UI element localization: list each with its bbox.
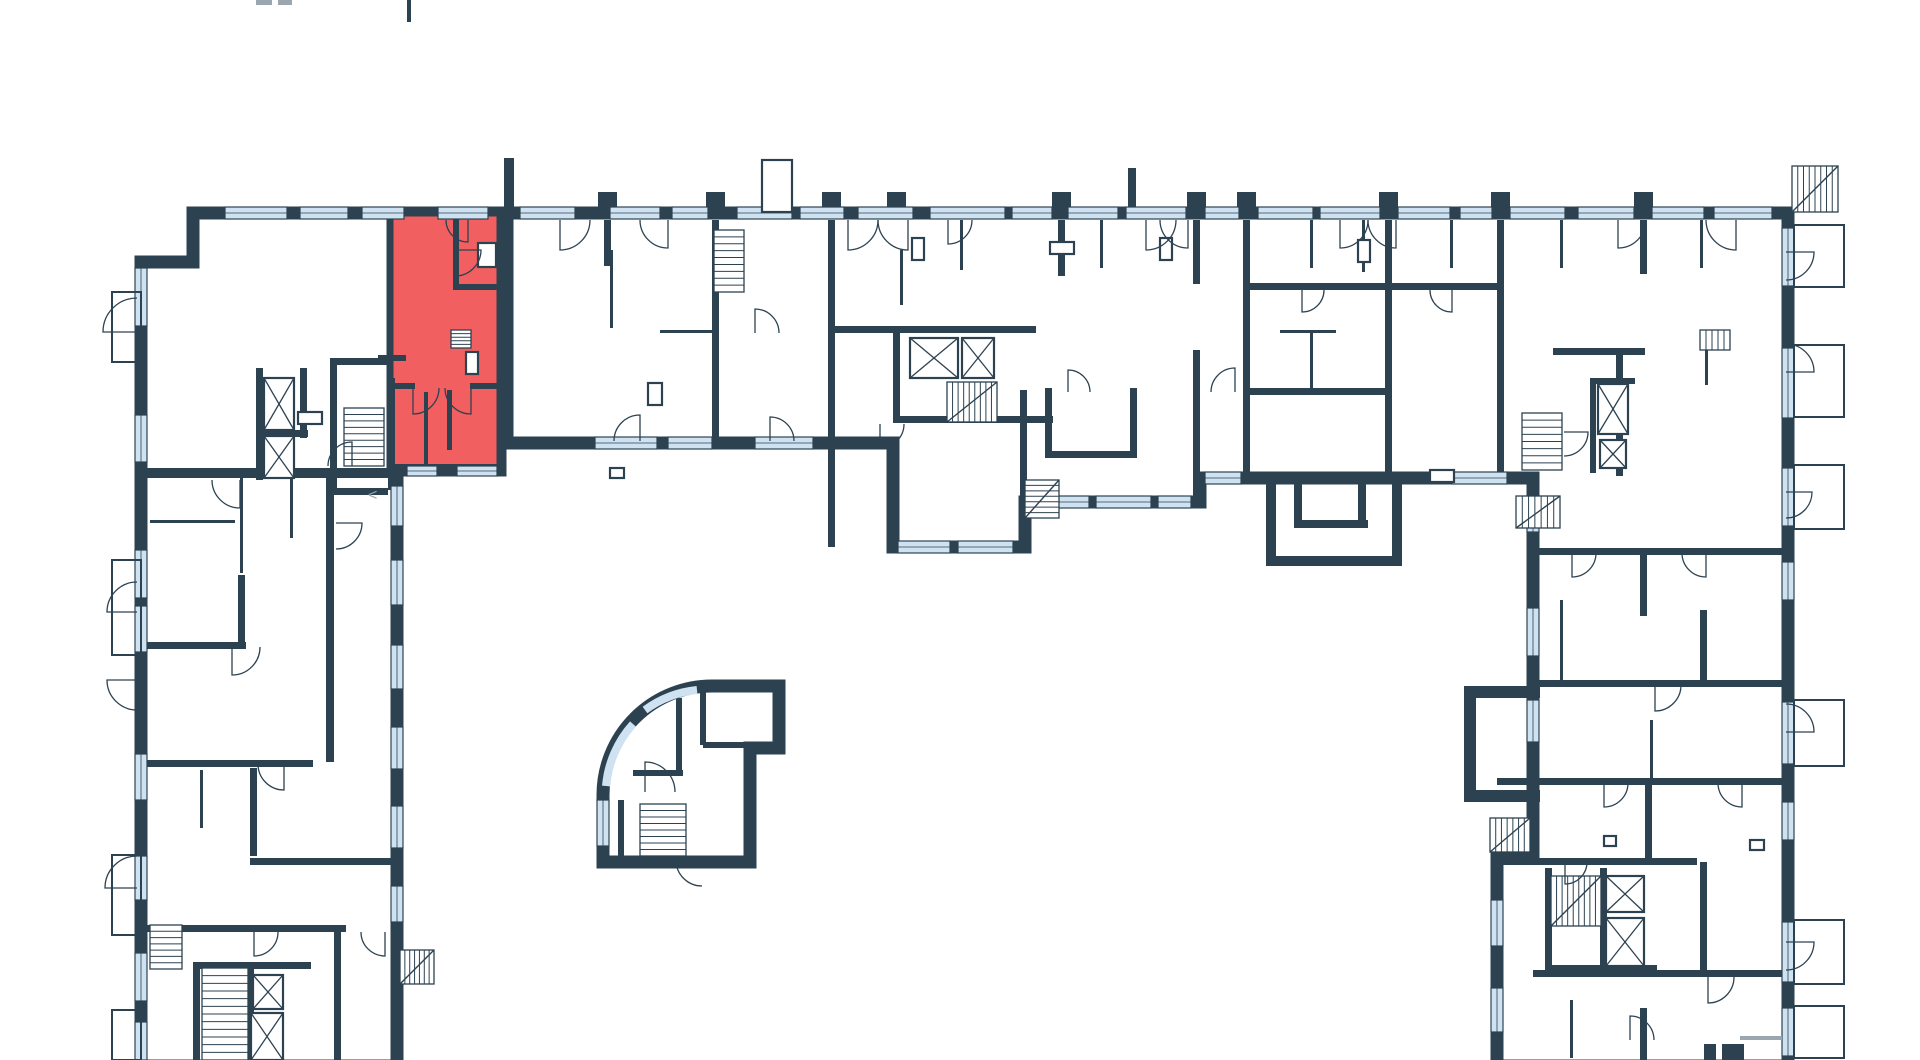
elevator-icon xyxy=(251,1013,283,1060)
balcony xyxy=(1794,465,1844,529)
stairs-icon xyxy=(714,230,744,292)
shaft-box xyxy=(762,160,792,212)
stairs-icon xyxy=(947,382,997,422)
elevator-icon xyxy=(1600,440,1626,468)
shaft-box xyxy=(1358,240,1370,262)
shaft-box xyxy=(1050,242,1074,254)
shaft-box xyxy=(1430,470,1454,482)
balcony xyxy=(1794,700,1844,766)
stairs-icon xyxy=(344,408,384,466)
stairs-icon xyxy=(400,950,434,984)
plan-annotation: < xyxy=(368,487,377,504)
elevator-icon xyxy=(1598,384,1628,434)
elevator-icon xyxy=(1606,918,1644,966)
floor-plan-svg: < xyxy=(0,0,1920,1060)
door-swing-icon xyxy=(105,856,137,888)
door-swing-icon xyxy=(107,680,137,710)
stairs-icon xyxy=(640,804,686,856)
shaft-box xyxy=(1750,840,1764,850)
balcony xyxy=(1794,345,1844,417)
balcony xyxy=(1794,225,1844,287)
stairs-icon xyxy=(1025,480,1059,518)
shaft-box xyxy=(466,352,478,374)
top-and-right-wing xyxy=(507,213,1788,1060)
floor-plan-canvas: < xyxy=(0,0,1920,1060)
elevator-icon xyxy=(253,975,283,1009)
stairs-icon xyxy=(1516,496,1560,528)
elevator-icon xyxy=(264,378,294,430)
door-swing-icon xyxy=(103,298,137,332)
balcony xyxy=(1794,1006,1844,1058)
stairs-icon xyxy=(1490,818,1530,852)
elevator-icon xyxy=(910,338,958,378)
stairs-icon xyxy=(451,330,471,348)
stairs-icon xyxy=(1792,166,1838,212)
stairs-icon xyxy=(1551,876,1601,926)
stairs-icon xyxy=(1522,413,1562,470)
stairs-icon xyxy=(202,968,248,1060)
shaft-box xyxy=(1604,836,1616,846)
elevator-icon xyxy=(1606,876,1644,912)
stairs-icon xyxy=(1700,330,1730,350)
shaft-box xyxy=(298,412,322,424)
shaft-box xyxy=(610,468,624,478)
elevator-icon xyxy=(264,436,294,478)
balcony xyxy=(1794,920,1844,984)
elevator-icon xyxy=(962,338,994,378)
stairs-icon xyxy=(150,925,182,969)
shaft-box xyxy=(912,238,924,260)
shaft-box xyxy=(648,383,662,405)
entrance-pavilion xyxy=(603,686,779,862)
